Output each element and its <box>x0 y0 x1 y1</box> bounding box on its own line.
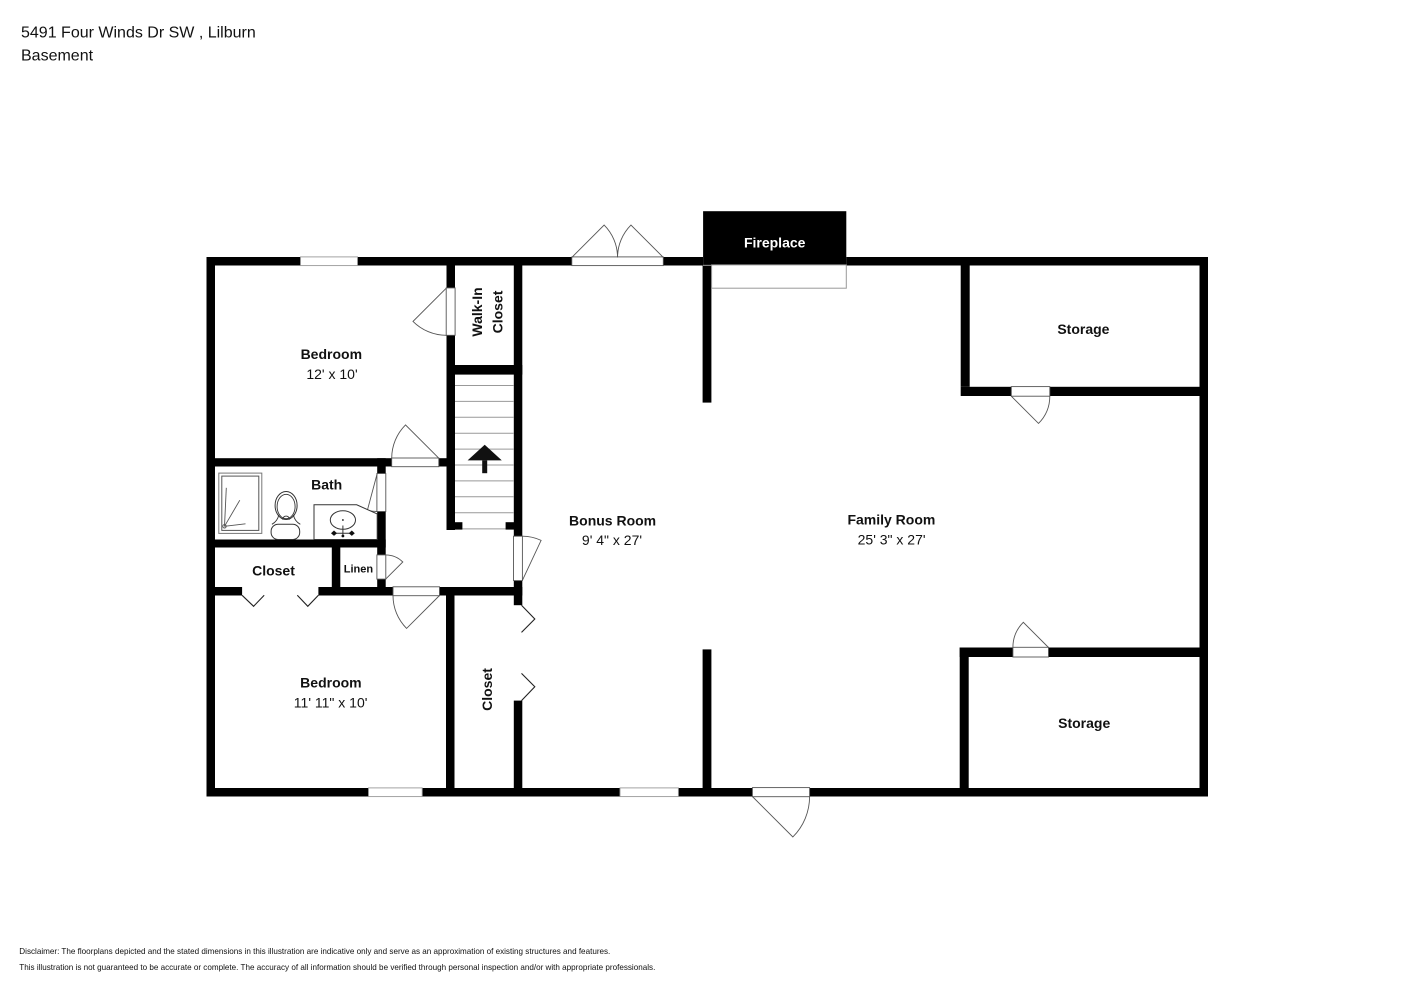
svg-text:Bedroom: Bedroom <box>300 675 361 691</box>
svg-text:11' 11" x 10': 11' 11" x 10' <box>294 695 368 711</box>
svg-text:Disclaimer: The floorplans dep: Disclaimer: The floorplans depicted and … <box>19 947 610 956</box>
svg-text:Bonus Room: Bonus Room <box>569 512 656 528</box>
svg-text:Linen: Linen <box>344 564 374 576</box>
svg-text:12' x 10': 12' x 10' <box>306 366 357 382</box>
svg-text:Bedroom: Bedroom <box>301 346 362 362</box>
svg-text:Closet: Closet <box>252 562 295 578</box>
svg-text:9' 4" x 27': 9' 4" x 27' <box>582 532 642 548</box>
svg-text:Walk-InCloset: Walk-InCloset <box>469 287 506 336</box>
svg-text:25' 3" x 27': 25' 3" x 27' <box>858 531 926 547</box>
svg-text:Bath: Bath <box>311 477 342 493</box>
svg-text:Family Room: Family Room <box>847 511 935 527</box>
svg-text:Storage: Storage <box>1057 321 1109 337</box>
svg-text:5491 Four Winds Dr SW , Lilbur: 5491 Four Winds Dr SW , Lilburn <box>21 25 256 42</box>
svg-text:Storage: Storage <box>1058 715 1110 731</box>
svg-text:This illustration is not guara: This illustration is not guaranteed to b… <box>19 963 655 972</box>
svg-text:Closet: Closet <box>479 668 495 711</box>
svg-text:Basement: Basement <box>21 48 94 65</box>
svg-text:Fireplace: Fireplace <box>744 235 806 251</box>
